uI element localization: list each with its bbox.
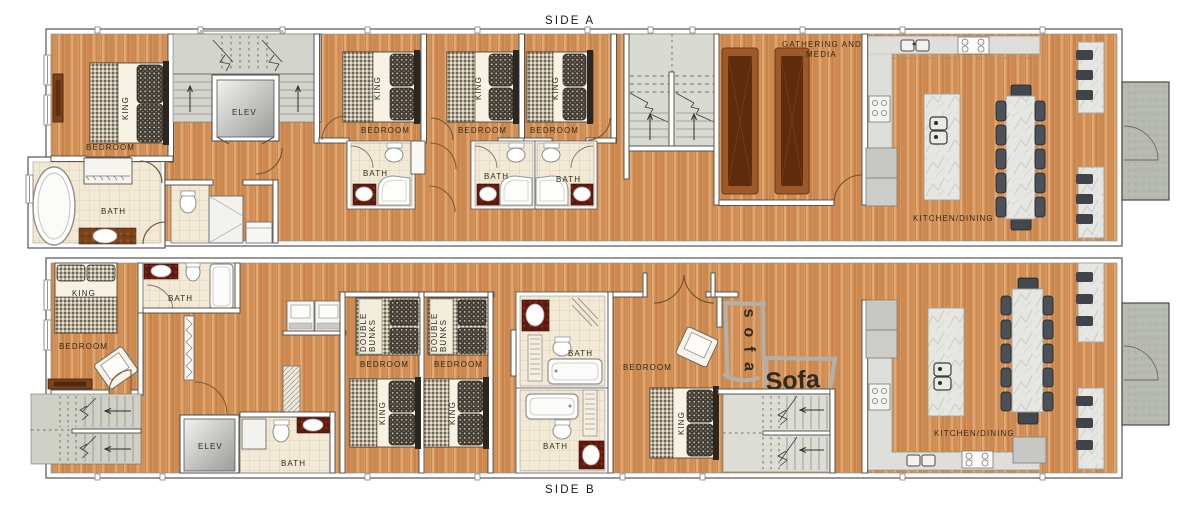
- svg-text:o: o: [740, 327, 758, 339]
- svg-text:MEDIA: MEDIA: [806, 50, 837, 59]
- svg-text:BATH: BATH: [543, 442, 568, 451]
- svg-text:BATH: BATH: [168, 294, 193, 303]
- svg-text:KING: KING: [378, 401, 387, 425]
- svg-text:BUNKS: BUNKS: [439, 319, 448, 352]
- svg-text:BEDROOM: BEDROOM: [530, 126, 579, 135]
- svg-text:BATH: BATH: [281, 459, 306, 468]
- svg-text:BEDROOM: BEDROOM: [623, 363, 672, 372]
- svg-text:DOUBLE: DOUBLE: [359, 313, 368, 353]
- svg-text:BATH: BATH: [556, 175, 581, 184]
- svg-text:BEDROOM: BEDROOM: [458, 126, 507, 135]
- svg-text:KING: KING: [72, 289, 96, 298]
- svg-text:KING: KING: [121, 96, 130, 120]
- svg-text:BATH: BATH: [101, 207, 126, 216]
- svg-text:BATH: BATH: [568, 349, 593, 358]
- svg-text:SIDE A: SIDE A: [545, 15, 595, 27]
- svg-text:KITCHEN/DINING: KITCHEN/DINING: [934, 429, 1015, 438]
- svg-text:DOUBLE: DOUBLE: [430, 313, 439, 353]
- svg-text:BEDROOM: BEDROOM: [361, 126, 410, 135]
- svg-text:KING: KING: [677, 411, 686, 435]
- svg-text:a: a: [741, 362, 758, 372]
- svg-text:GATHERING AND: GATHERING AND: [782, 40, 862, 49]
- svg-text:KING: KING: [373, 76, 382, 100]
- svg-text:BATH: BATH: [484, 172, 509, 181]
- svg-text:s: s: [740, 308, 758, 318]
- svg-text:BUNKS: BUNKS: [368, 319, 377, 352]
- svg-text:BEDROOM: BEDROOM: [434, 360, 483, 369]
- svg-text:BEDROOM: BEDROOM: [59, 342, 108, 351]
- svg-text:KING: KING: [474, 76, 483, 100]
- svg-text:BEDROOM: BEDROOM: [86, 143, 135, 152]
- svg-text:KITCHEN/DINING: KITCHEN/DINING: [913, 214, 994, 223]
- svg-text:KING: KING: [551, 76, 560, 100]
- svg-text:ELEV: ELEV: [198, 442, 223, 451]
- svg-text:KING: KING: [448, 401, 457, 425]
- svg-text:SIDE B: SIDE B: [545, 484, 596, 496]
- svg-text:ELEV: ELEV: [232, 108, 257, 117]
- svg-text:BEDROOM: BEDROOM: [360, 360, 409, 369]
- svg-text:BATH: BATH: [363, 169, 388, 178]
